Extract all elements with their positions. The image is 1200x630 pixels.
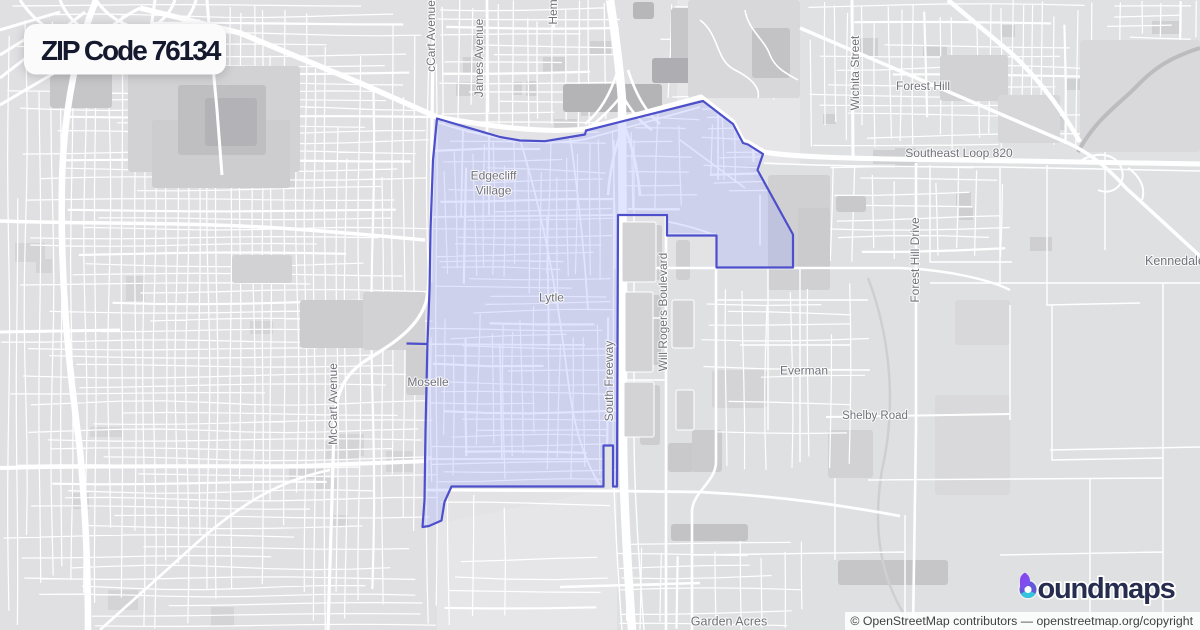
svg-text:Edgecliff: Edgecliff [471, 169, 517, 183]
svg-text:Will Rogers Boulevard: Will Rogers Boulevard [656, 253, 670, 372]
svg-text:McCart Avenue: McCart Avenue [326, 363, 340, 445]
svg-text:© OpenStreetMap contributors —: © OpenStreetMap contributors — openstree… [850, 614, 1193, 628]
svg-text:ZIP Code 76134: ZIP Code 76134 [41, 35, 222, 66]
svg-text:Garden Acres: Garden Acres [691, 615, 767, 629]
svg-text:Forest Hill Drive: Forest Hill Drive [908, 217, 922, 303]
svg-text:Wichita Street: Wichita Street [848, 35, 862, 110]
svg-text:James Avenue: James Avenue [472, 18, 486, 97]
svg-text:Kennedale: Kennedale [1145, 254, 1200, 268]
svg-text:Forest Hill: Forest Hill [896, 79, 950, 93]
svg-text:Everman: Everman [780, 364, 828, 378]
svg-text:Southeast Loop 820: Southeast Loop 820 [905, 146, 1013, 160]
svg-text:cCart Avenue: cCart Avenue [424, 0, 438, 72]
svg-text:Moselle: Moselle [407, 375, 449, 389]
svg-text:Village: Village [476, 184, 512, 198]
svg-text:Hem: Hem [546, 0, 560, 25]
svg-text:Lytle: Lytle [539, 291, 564, 305]
svg-text:oundmaps: oundmaps [1038, 573, 1175, 605]
svg-text:South Freeway: South Freeway [602, 341, 616, 422]
svg-text:Shelby Road: Shelby Road [842, 410, 908, 422]
